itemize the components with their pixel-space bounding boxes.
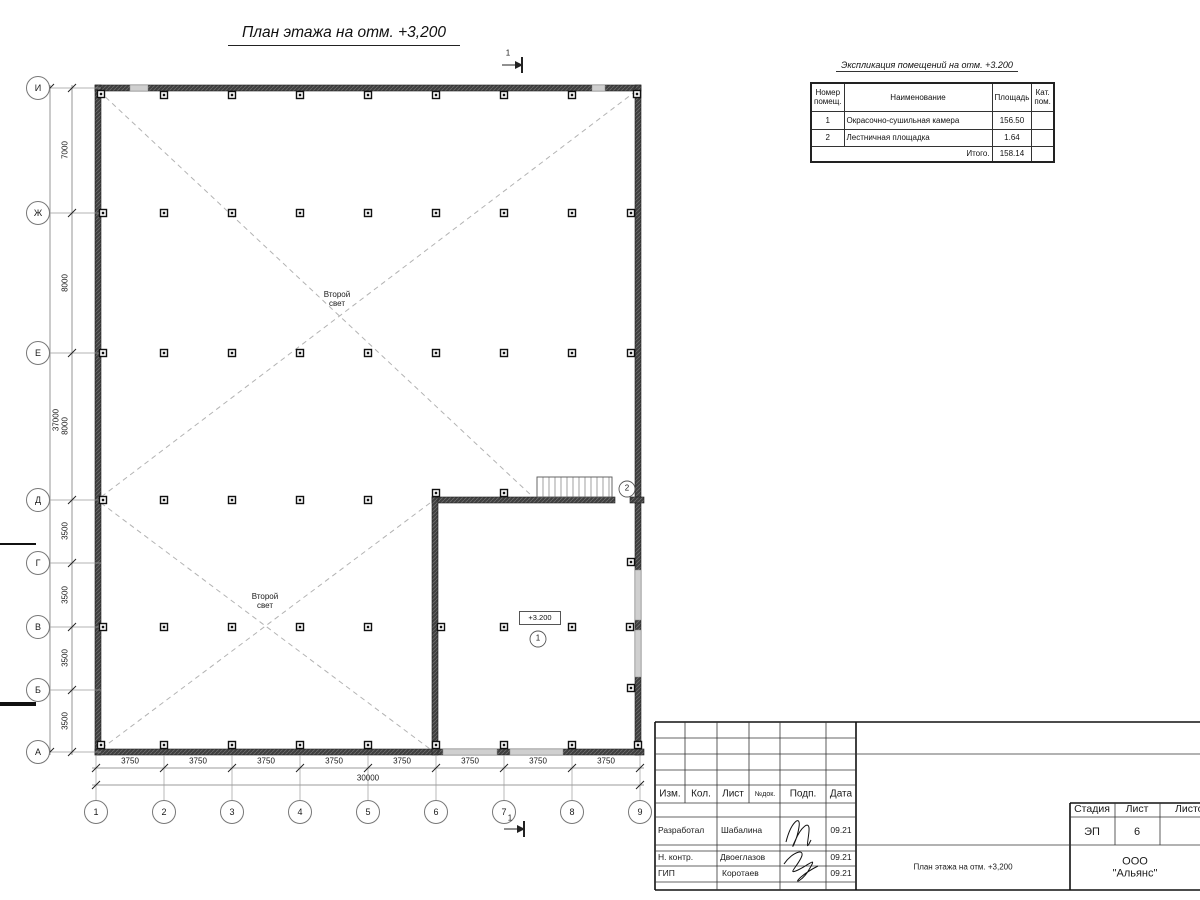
second-light-label: Второй свет <box>252 593 278 611</box>
titleblock-date: 09.21 <box>830 853 851 863</box>
titleblock-name: Коротаев <box>722 869 759 879</box>
axis-label-horizontal: 9 <box>637 807 642 817</box>
dim-label-horizontal: 3750 <box>461 758 479 767</box>
titleblock-date: 09.21 <box>830 826 851 836</box>
titleblock-role: ГИП <box>658 869 675 879</box>
company-name: ООО "Альянс" <box>1103 856 1168 881</box>
dimension-ticks <box>46 84 644 789</box>
wall-openings <box>130 85 641 755</box>
room-area: 156.50 <box>992 111 1032 129</box>
titleblock-doc-title: План этажа на отм. +3,200 <box>913 864 1012 873</box>
exterior-walls <box>95 85 644 755</box>
titleblock-col-podp: Подп. <box>790 788 817 799</box>
schedule-header-num: Номер помещ. <box>811 83 844 111</box>
second-light-label: Второй свет <box>324 291 350 309</box>
second-light-diagonals <box>99 91 636 749</box>
titleblock-col-data: Дата <box>830 788 852 799</box>
titleblock-date: 09.21 <box>830 869 851 879</box>
room-name: Окрасочно-сушильная камера <box>844 111 992 129</box>
dim-label-vertical: 3500 <box>62 586 71 604</box>
room-name: Лестничная площадка <box>844 129 992 146</box>
schedule-header-name: Наименование <box>844 83 992 111</box>
titleblock-col-list: Лист <box>722 788 744 799</box>
axis-label-horizontal: 4 <box>297 807 302 817</box>
dim-label-vertical: 7000 <box>62 141 71 159</box>
dim-label-horizontal: 3750 <box>597 758 615 767</box>
room-num: 1 <box>811 111 844 129</box>
elevation-mark: +3.200 <box>519 611 561 625</box>
room-tag-2: 2 <box>625 485 629 494</box>
schedule-title: Экспликация помещений на отм. +3.200 <box>836 60 1018 72</box>
column-squares <box>98 91 642 749</box>
section-mark-label: 1 <box>506 50 510 59</box>
section-mark-label: 1 <box>508 815 512 824</box>
dim-label-horizontal: 3750 <box>529 758 547 767</box>
axis-label-vertical: Д <box>35 495 41 505</box>
interior-walls <box>432 497 644 755</box>
axis-label-horizontal: 7 <box>501 807 506 817</box>
page-title: План этажа на отм. +3,200 <box>228 24 460 46</box>
room-cat <box>1032 129 1054 146</box>
axis-label-vertical: А <box>35 747 41 757</box>
schedule-header-area: Площадь <box>992 83 1032 111</box>
axis-label-vertical: Б <box>35 685 41 695</box>
axis-label-vertical: Г <box>36 558 41 568</box>
room-area: 1.64 <box>992 129 1032 146</box>
axis-label-horizontal: 5 <box>365 807 370 817</box>
dim-total-horizontal: 30000 <box>357 775 379 784</box>
axis-label-horizontal: 8 <box>569 807 574 817</box>
schedule-header-cat: Кат. пом. <box>1032 83 1054 111</box>
titleblock-role: Разработал <box>658 826 704 836</box>
stage-value: ЭП <box>1084 826 1100 838</box>
table-row: 1 Окрасочно-сушильная камера 156.50 <box>811 111 1054 129</box>
dim-label-horizontal: 3750 <box>189 758 207 767</box>
titleblock-col-kol: Кол. <box>691 788 711 799</box>
axis-connector-lines <box>49 88 640 800</box>
titleblock-col-izm: Изм. <box>659 788 680 799</box>
axis-label-horizontal: 2 <box>161 807 166 817</box>
titleblock-role: Н. контр. <box>658 853 693 863</box>
axis-label-horizontal: 6 <box>433 807 438 817</box>
axis-label-horizontal: 3 <box>229 807 234 817</box>
dim-label-vertical: 3500 <box>62 649 71 667</box>
dim-label-horizontal: 3750 <box>121 758 139 767</box>
dimension-lines <box>50 85 644 785</box>
axis-label-vertical: Ж <box>34 208 42 218</box>
axis-circles <box>27 77 652 824</box>
axis-label-vertical: Е <box>35 348 41 358</box>
dim-label-horizontal: 3750 <box>325 758 343 767</box>
axis-label-horizontal: 1 <box>93 807 98 817</box>
section-marks <box>502 57 525 837</box>
table-row: 2 Лестничная площадка 1.64 <box>811 129 1054 146</box>
sheet-value: 6 <box>1134 826 1140 838</box>
dim-label-vertical: 3500 <box>62 712 71 730</box>
schedule-total-label: Итого. <box>811 146 992 162</box>
dim-label-horizontal: 3750 <box>393 758 411 767</box>
stage-label: Стадия <box>1074 804 1110 816</box>
axis-label-vertical: И <box>35 83 41 93</box>
titleblock-name: Шабалина <box>721 826 762 836</box>
table-row-total: Итого. 158.14 <box>811 146 1054 162</box>
sheets-label: Листов <box>1175 804 1200 816</box>
titleblock-col-ndok: №док. <box>755 791 776 799</box>
stairs <box>537 477 612 497</box>
room-num: 2 <box>811 129 844 146</box>
schedule-total-value: 158.14 <box>992 146 1032 162</box>
room-tag-1: 1 <box>536 635 540 644</box>
dim-label-horizontal: 3750 <box>257 758 275 767</box>
dim-label-vertical: 8000 <box>62 417 71 435</box>
titleblock-name: Двоеглазов <box>720 853 765 863</box>
axis-label-vertical: В <box>35 622 41 632</box>
room-cat <box>1032 111 1054 129</box>
dim-label-vertical: 3500 <box>62 522 71 540</box>
room-schedule-table: Номер помещ. Наименование Площадь Кат. п… <box>810 82 1055 163</box>
dim-label-vertical: 8000 <box>62 274 71 292</box>
drawing-sheet: План этажа на отм. +3,200 Экспликация по… <box>0 0 1200 900</box>
sheet-label: Лист <box>1126 804 1149 816</box>
